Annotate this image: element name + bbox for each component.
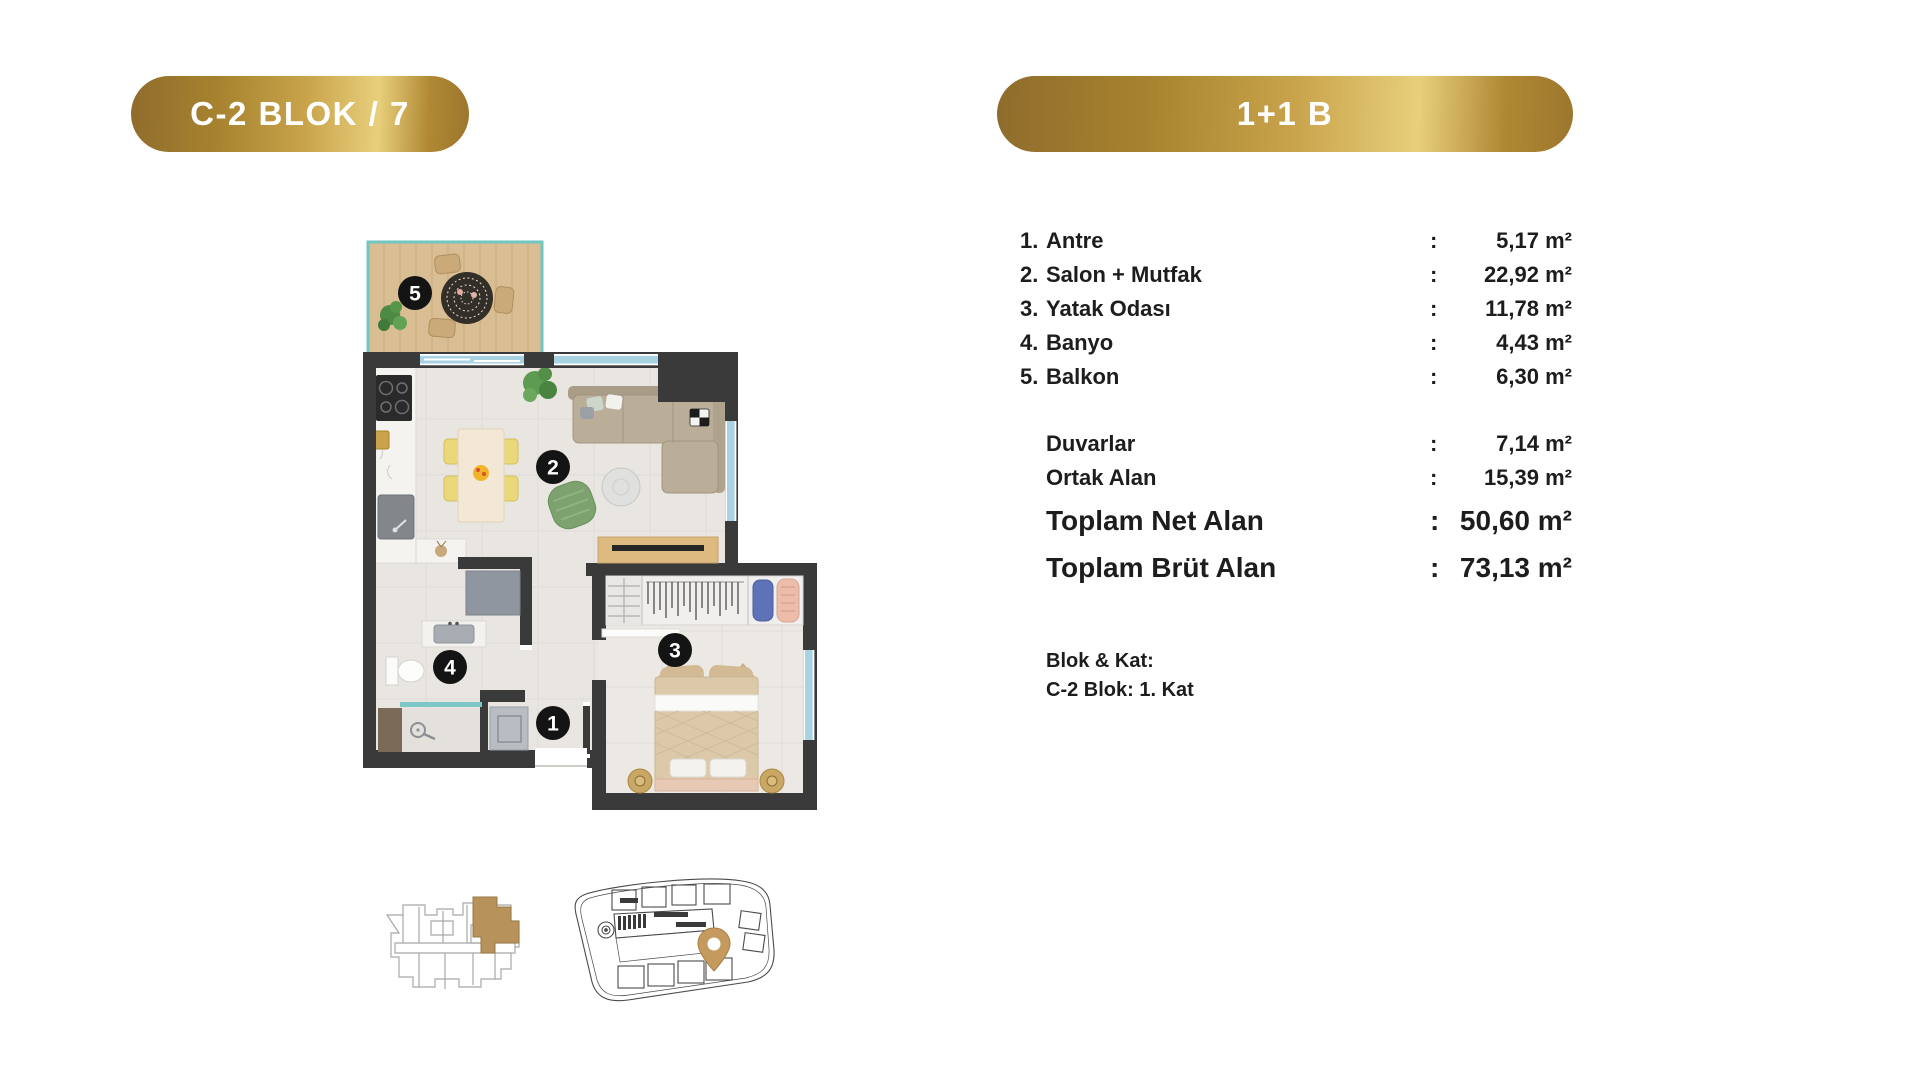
- room-row: 2.Salon + Mutfak:22,92 m²: [1020, 262, 1572, 296]
- floor-plan: 5 2 3 4 1: [340, 225, 840, 825]
- row-number: 5.: [1020, 364, 1046, 390]
- kitchen-sink: [378, 495, 414, 539]
- room-marker-3: 3: [669, 640, 681, 663]
- row-label: Toplam Net Alan: [1046, 505, 1430, 537]
- block-info-title: Blok & Kat:: [1046, 647, 1572, 676]
- unit-type-badge-label: 1+1 B: [1237, 95, 1333, 133]
- total-row: Toplam Net Alan:50,60 m²: [1020, 505, 1572, 552]
- row-value: 11,78 m²: [1442, 296, 1572, 322]
- location-pin-icon: [698, 928, 730, 971]
- site-plan: [556, 870, 788, 1010]
- row-label: Toplam Brüt Alan: [1046, 552, 1430, 584]
- unit-details: 1.Antre:5,17 m²2.Salon + Mutfak:22,92 m²…: [1020, 228, 1572, 705]
- block-badge-label: C-2 BLOK / 7: [190, 95, 410, 133]
- floor-plan-drawing: 5 2 3 4 1: [340, 225, 840, 825]
- unit-type-badge: 1+1 B: [997, 76, 1573, 152]
- row-number: 1.: [1020, 228, 1046, 254]
- washing-machine: [490, 707, 528, 750]
- room-list: 1.Antre:5,17 m²2.Salon + Mutfak:22,92 m²…: [1020, 228, 1572, 398]
- room-marker-1: 1: [547, 713, 559, 736]
- wardrobe-item-pink: [777, 579, 799, 622]
- row-label: Ortak Alan: [1046, 465, 1430, 491]
- row-value: 5,17 m²: [1442, 228, 1572, 254]
- floor-key-plan: [375, 885, 543, 1003]
- block-info-line: C-2 Blok: 1. Kat: [1046, 676, 1572, 705]
- room-row: 5.Balkon:6,30 m²: [1020, 364, 1572, 398]
- row-value: 73,13 m²: [1442, 552, 1572, 584]
- row-value: 22,92 m²: [1442, 262, 1572, 288]
- row-value: 7,14 m²: [1442, 431, 1572, 457]
- row-number: 4.: [1020, 330, 1046, 356]
- row-number: 2.: [1020, 262, 1046, 288]
- checkered-pillow: [690, 409, 709, 426]
- bathroom-door: [378, 708, 402, 752]
- extra-row: Ortak Alan:15,39 m²: [1020, 465, 1572, 499]
- room-row: 4.Banyo:4,43 m²: [1020, 330, 1572, 364]
- block-info: Blok & Kat: C-2 Blok: 1. Kat: [1020, 647, 1572, 705]
- room-row: 1.Antre:5,17 m²: [1020, 228, 1572, 262]
- row-colon: :: [1430, 296, 1442, 322]
- row-value: 15,39 m²: [1442, 465, 1572, 491]
- total-area-list: Toplam Net Alan:50,60 m²Toplam Brüt Alan…: [1020, 505, 1572, 599]
- shower-glass: [400, 702, 482, 707]
- room-row: 3.Yatak Odası:11,78 m²: [1020, 296, 1572, 330]
- balcony-table: [441, 272, 493, 324]
- toilet: [386, 657, 398, 685]
- row-value: 4,43 m²: [1442, 330, 1572, 356]
- row-colon: :: [1430, 262, 1442, 288]
- site-core: [618, 898, 706, 930]
- brochure-page: C-2 BLOK / 7 1+1 B: [0, 0, 1920, 1080]
- row-colon: :: [1430, 505, 1442, 537]
- row-colon: :: [1430, 465, 1442, 491]
- balcony: [368, 242, 542, 355]
- total-row: Toplam Brüt Alan:73,13 m²: [1020, 552, 1572, 599]
- row-colon: :: [1430, 552, 1442, 584]
- row-label: Balkon: [1046, 364, 1430, 390]
- row-label: Duvarlar: [1046, 431, 1430, 457]
- row-number: 3.: [1020, 296, 1046, 322]
- room-marker-4: 4: [444, 657, 456, 680]
- row-label: Antre: [1046, 228, 1430, 254]
- cooktop: [376, 375, 412, 421]
- row-label: Salon + Mutfak: [1046, 262, 1430, 288]
- room-marker-5: 5: [409, 283, 421, 306]
- row-colon: :: [1430, 228, 1442, 254]
- block-badge: C-2 BLOK / 7: [131, 76, 469, 152]
- bathroom-cabinet: [466, 571, 520, 615]
- row-colon: :: [1430, 330, 1442, 356]
- bed: [655, 663, 758, 791]
- row-label: Yatak Odası: [1046, 296, 1430, 322]
- room-marker-2: 2: [547, 457, 559, 480]
- coffee-table: [602, 468, 640, 506]
- row-colon: :: [1430, 364, 1442, 390]
- shower: [402, 708, 480, 752]
- row-label: Banyo: [1046, 330, 1430, 356]
- wardrobe-item-blue: [753, 580, 773, 621]
- extra-area-list: Duvarlar:7,14 m²Ortak Alan:15,39 m²: [1020, 431, 1572, 499]
- tv: [612, 545, 704, 551]
- row-value: 50,60 m²: [1442, 505, 1572, 537]
- row-colon: :: [1430, 431, 1442, 457]
- extra-row: Duvarlar:7,14 m²: [1020, 431, 1572, 465]
- row-value: 6,30 m²: [1442, 364, 1572, 390]
